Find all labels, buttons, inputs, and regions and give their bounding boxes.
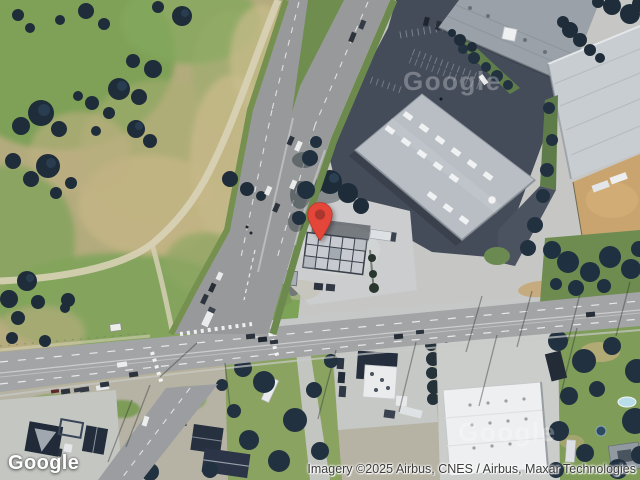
map-pin-icon[interactable] (306, 201, 334, 242)
google-logo[interactable]: Google (8, 452, 79, 475)
imagery-attribution: Imagery ©2025 Airbus, CNES / Airbus, Max… (307, 462, 636, 476)
auto-shop (333, 340, 438, 430)
white-warehouse (436, 326, 560, 480)
swimming-pool (618, 397, 636, 407)
google-watermark: Google (403, 66, 502, 96)
google-watermark: Google (458, 417, 557, 447)
map-viewport[interactable]: Google Google Google Imagery ©2025 Airbu… (0, 0, 640, 480)
rooftop-cupola (502, 27, 517, 41)
trampoline (596, 426, 606, 436)
roadside-sign (110, 323, 122, 331)
